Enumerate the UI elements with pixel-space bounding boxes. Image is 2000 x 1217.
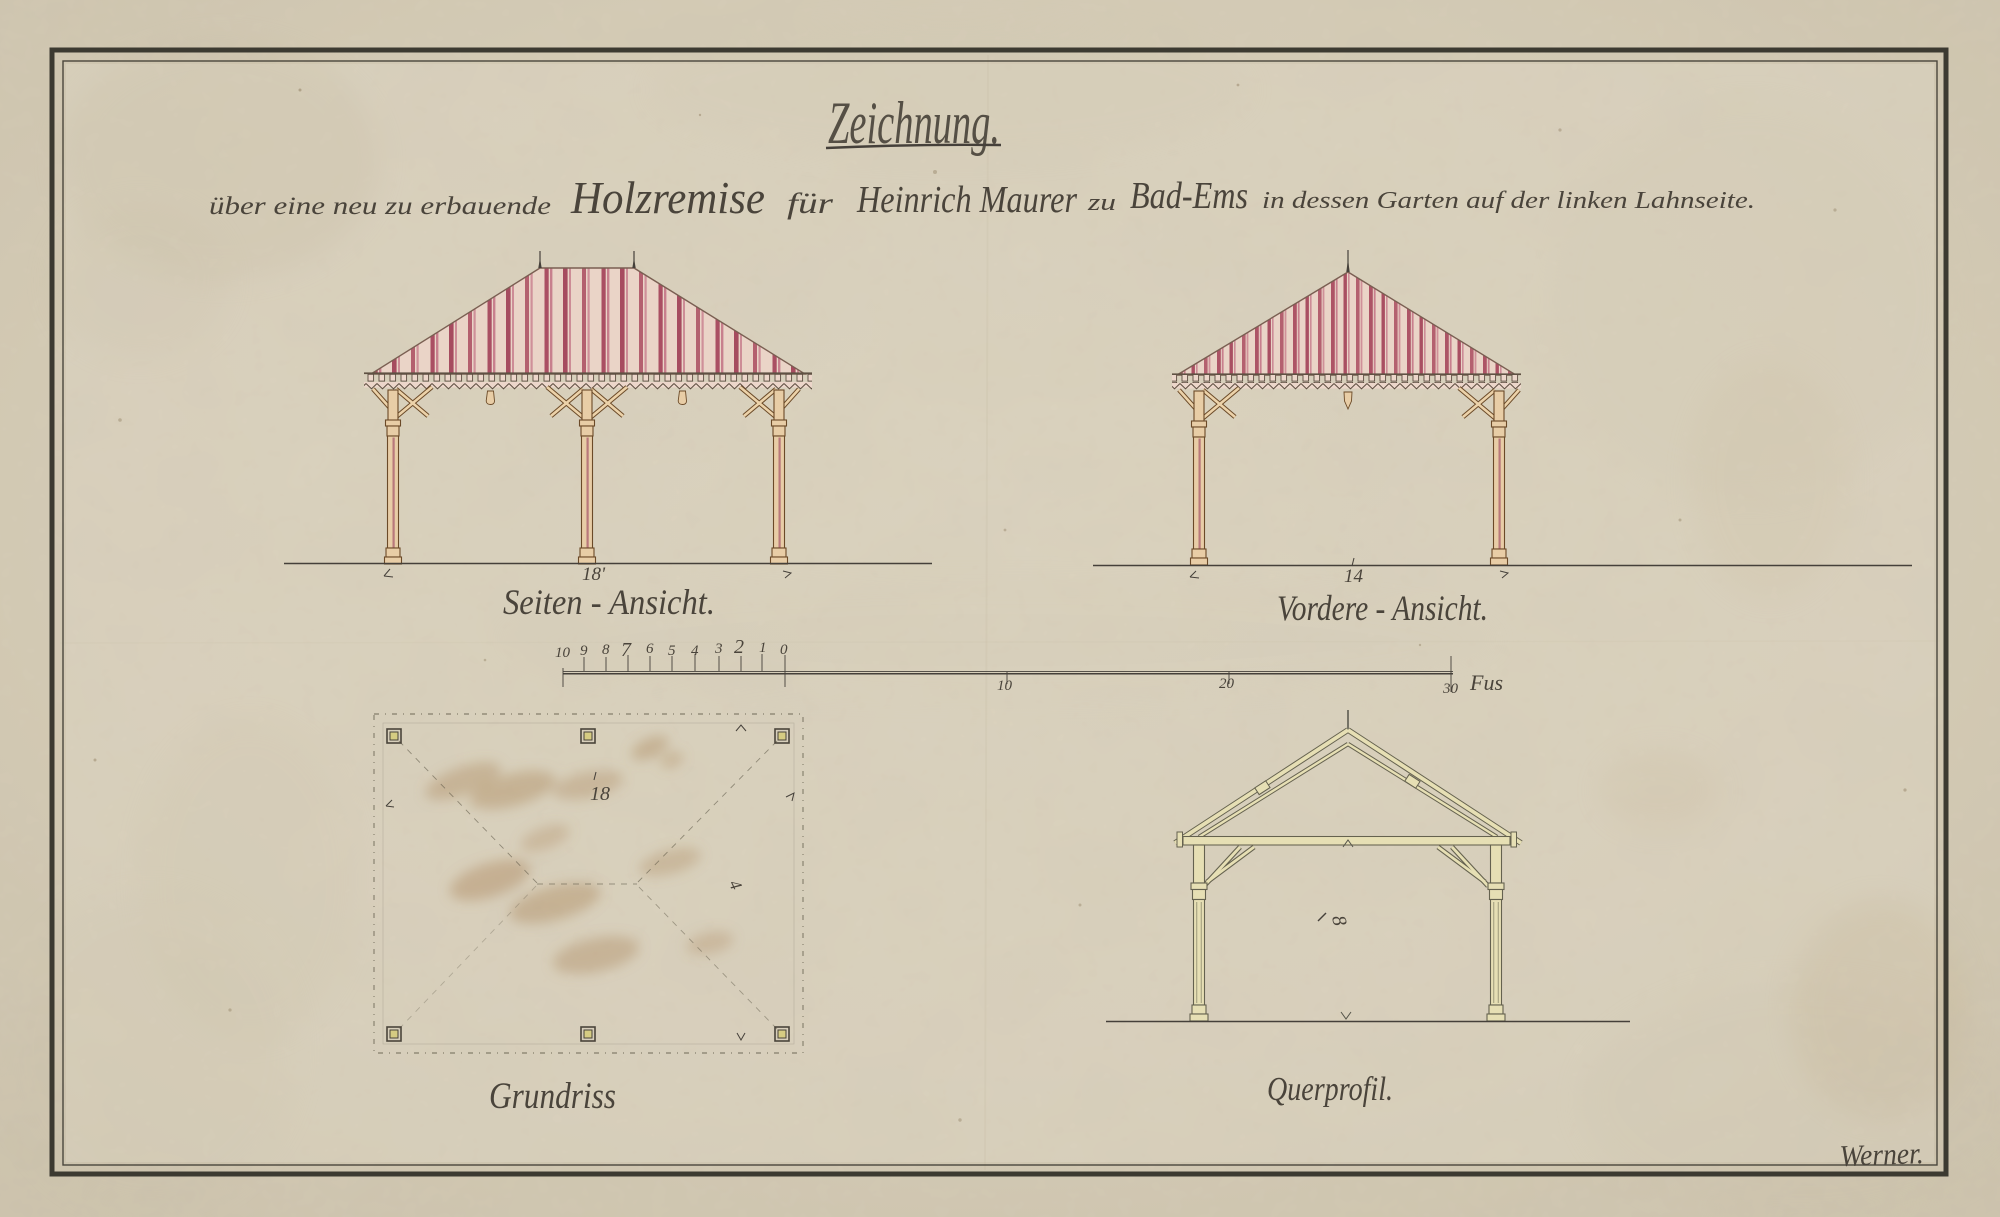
- svg-text:Seiten - Ansicht.: Seiten - Ansicht.: [503, 582, 715, 622]
- svg-text:2: 2: [734, 636, 744, 658]
- svg-text:Werner.: Werner.: [1839, 1137, 1924, 1173]
- svg-text:7: 7: [621, 639, 632, 661]
- svg-text:Bad-Ems: Bad-Ems: [1130, 175, 1248, 217]
- svg-text:14: 14: [1344, 566, 1364, 587]
- svg-text:4: 4: [691, 643, 699, 659]
- svg-text:Querprofil.: Querprofil.: [1267, 1071, 1393, 1108]
- svg-text:8: 8: [602, 642, 610, 658]
- svg-text:20: 20: [1219, 676, 1235, 692]
- svg-text:Vordere - Ansicht.: Vordere - Ansicht.: [1277, 588, 1488, 628]
- svg-text:10: 10: [997, 678, 1013, 694]
- svg-text:zu: zu: [1087, 190, 1116, 216]
- svg-text:10: 10: [555, 645, 571, 661]
- svg-text:0: 0: [780, 642, 788, 658]
- svg-text:Grundriss: Grundriss: [489, 1076, 616, 1117]
- svg-text:3: 3: [714, 641, 723, 657]
- svg-text:5: 5: [668, 643, 676, 659]
- svg-text:9: 9: [580, 643, 588, 659]
- svg-text:Holzremise: Holzremise: [570, 172, 765, 223]
- svg-text:über eine neu zu erbauende: über eine neu zu erbauende: [209, 193, 551, 220]
- svg-text:in dessen Garten auf der linke: in dessen Garten auf der linken Lahnseit…: [1262, 188, 1755, 214]
- svg-text:für: für: [787, 187, 833, 220]
- svg-text:30: 30: [1442, 681, 1459, 697]
- svg-text:1: 1: [759, 640, 767, 656]
- svg-text:6: 6: [646, 641, 654, 657]
- svg-text:Fus: Fus: [1469, 670, 1503, 695]
- svg-text:Heinrich Maurer: Heinrich Maurer: [856, 179, 1077, 221]
- svg-text:18: 18: [590, 783, 610, 805]
